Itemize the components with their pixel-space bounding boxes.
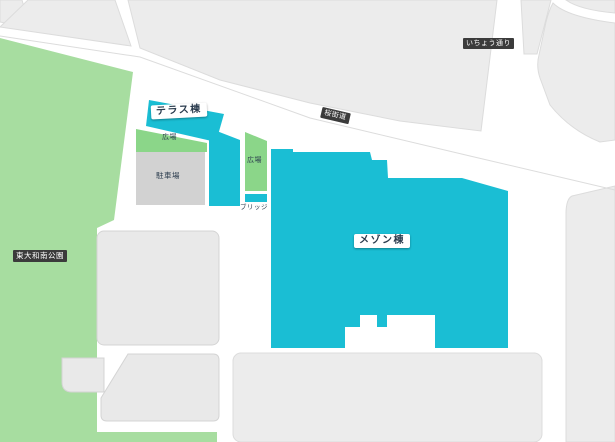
park-label: 東大和南公園 (13, 250, 67, 262)
plaza1-label: 広場 (162, 134, 177, 141)
city-block-south (233, 353, 542, 442)
map-shapes (0, 0, 615, 442)
bridge-shape (245, 194, 267, 202)
bridge-label: ブリッジ (240, 204, 268, 211)
park-strip-south (88, 432, 217, 442)
site-access-map: 東大和南公園 テラス棟 メゾン棟 広場 駐車場 広場 ブリッジ 桜街道 いちょう… (0, 0, 615, 442)
terrace-wing-shape (209, 128, 240, 206)
road-label-icho-dori: いちょう通り (463, 38, 514, 49)
city-block-southeast (566, 186, 615, 442)
terrace-building-label: テラス棟 (151, 103, 207, 120)
building-block-west-upper (97, 231, 219, 345)
parking-label: 駐車場 (156, 172, 180, 180)
plaza2-label: 広場 (247, 157, 262, 164)
maison-building-label: メゾン棟 (354, 234, 410, 248)
building-annex-west (62, 358, 104, 392)
